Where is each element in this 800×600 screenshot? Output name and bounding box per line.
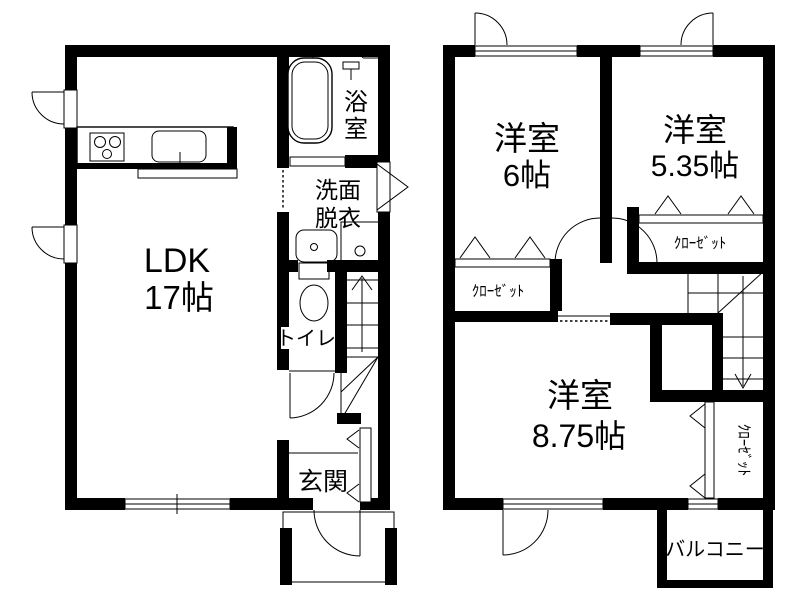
balcony-label: バルコニー bbox=[665, 539, 765, 561]
closet6-area bbox=[455, 237, 550, 267]
ldk-size-label: 17帖 bbox=[144, 279, 214, 316]
closet6-label: ｸﾛｰｾﾞｯﾄ bbox=[472, 283, 525, 300]
window-ldk-sliding bbox=[125, 494, 230, 514]
window-bedroom6 bbox=[475, 13, 577, 56]
closet535-label: ｸﾛｰｾﾞｯﾄ bbox=[674, 235, 727, 252]
kitchen-counter bbox=[77, 127, 237, 178]
first-floor: LDK 17帖 浴 室 洗面 脱衣 トイレ 玄関 bbox=[32, 45, 408, 585]
bathtub bbox=[288, 58, 332, 143]
bath-label-1: 浴 bbox=[344, 89, 368, 116]
second-floor: 洋室 6帖 洋室 5.35帖 洋室 8.75帖 ｸﾛｰｾﾞｯﾄ ｸﾛｰｾﾞｯﾄ … bbox=[443, 13, 775, 588]
washroom-label-1: 洗面 bbox=[315, 177, 361, 203]
front-door-swing bbox=[314, 510, 360, 556]
toilet-tank bbox=[299, 263, 329, 279]
staircase-second-floor bbox=[688, 272, 763, 388]
bedroom875-entry bbox=[558, 316, 610, 321]
closet875-area bbox=[690, 402, 714, 498]
shoe-closet bbox=[360, 428, 371, 502]
bath-label-2: 室 bbox=[344, 116, 368, 143]
porch bbox=[283, 512, 394, 582]
window-small-bottom bbox=[688, 499, 718, 509]
bedroom6-door-swing bbox=[555, 218, 600, 263]
stove bbox=[90, 133, 124, 161]
washroom-window bbox=[377, 162, 390, 212]
shower-mixer bbox=[343, 62, 359, 69]
bedroom535-size-label: 5.35帖 bbox=[651, 150, 739, 183]
kitchen-sink bbox=[152, 131, 206, 162]
bedroom875-size-label: 8.75帖 bbox=[532, 418, 626, 454]
bedroom875-label: 洋室 bbox=[547, 377, 613, 414]
bedroom6-label: 洋室 bbox=[494, 120, 560, 157]
bedroom535-label: 洋室 bbox=[663, 112, 727, 148]
wash-basin bbox=[296, 230, 337, 262]
bedroom6-size-label: 6帖 bbox=[503, 158, 551, 193]
window-left-bottom bbox=[32, 225, 77, 263]
floor-plan-canvas: LDK 17帖 浴 室 洗面 脱衣 トイレ 玄関 bbox=[0, 0, 800, 600]
ldk-label: LDK bbox=[144, 242, 210, 280]
bath-door bbox=[290, 157, 345, 166]
toilet-bowl bbox=[300, 285, 328, 321]
closet535-area bbox=[639, 196, 763, 223]
balcony-door bbox=[503, 499, 603, 555]
toilet-door-swing bbox=[290, 373, 334, 418]
kitchen-bar-counter bbox=[138, 169, 237, 178]
closet875-label: ｸﾛｰｾﾞｯﾄ bbox=[735, 424, 752, 477]
floor-plan: LDK 17帖 浴 室 洗面 脱衣 トイレ 玄関 bbox=[0, 0, 800, 600]
window-bedroom535 bbox=[640, 13, 713, 56]
second-floor-inner-walls bbox=[443, 57, 775, 402]
toilet-label: トイレ bbox=[276, 328, 336, 350]
window-left-top bbox=[32, 90, 77, 128]
entrance-label: 玄関 bbox=[298, 468, 348, 496]
washroom-label-2: 脱衣 bbox=[315, 205, 361, 231]
